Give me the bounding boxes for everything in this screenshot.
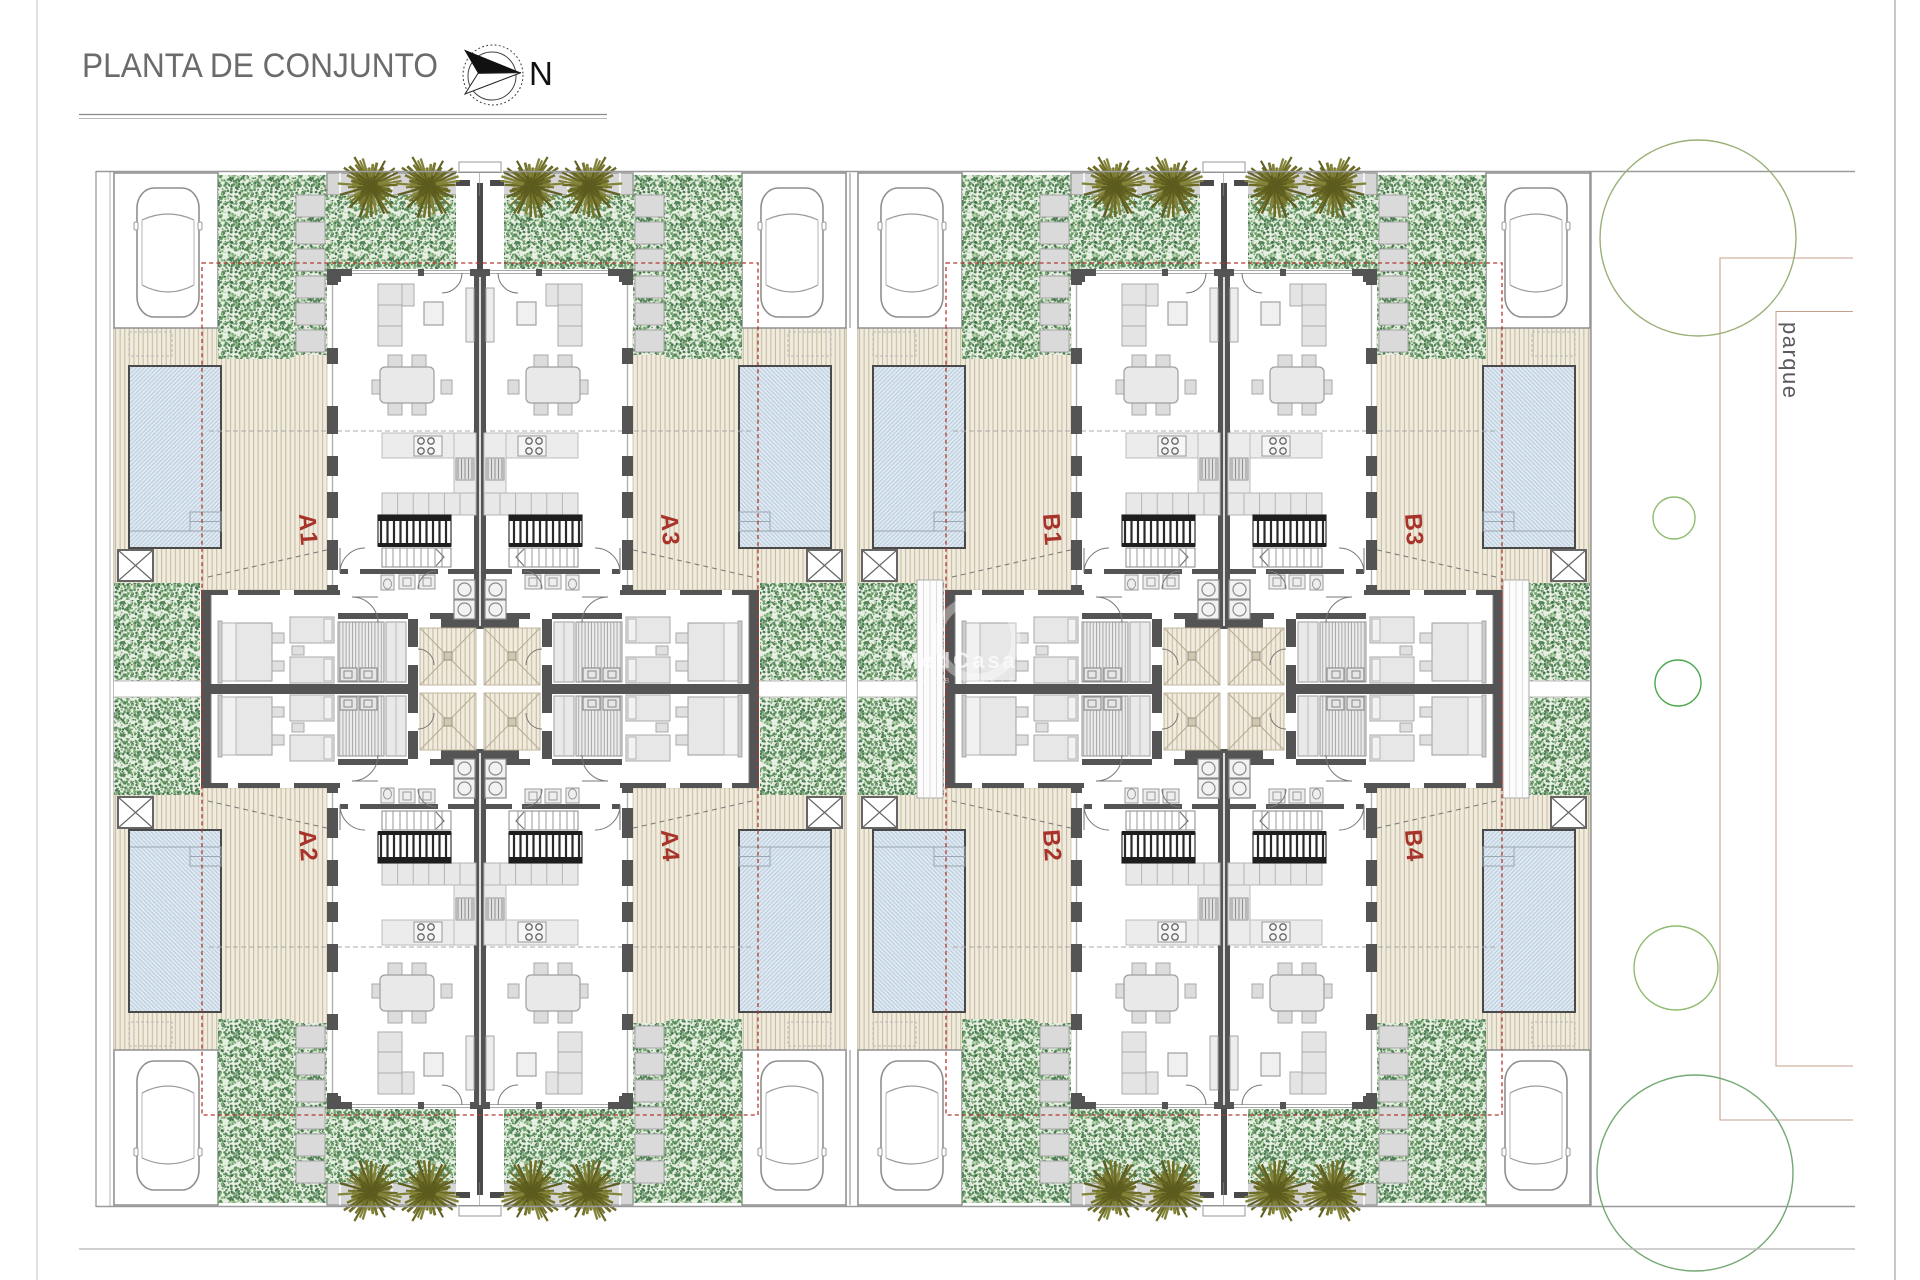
svg-text:N: N <box>529 55 553 92</box>
svg-text:parque: parque <box>1778 322 1803 400</box>
svg-text:MedCasa: MedCasa <box>900 648 1018 673</box>
svg-text:A4: A4 <box>655 829 684 863</box>
svg-text:B1: B1 <box>1037 513 1066 547</box>
svg-text:B4: B4 <box>1399 829 1428 863</box>
svg-text:A2: A2 <box>293 829 322 863</box>
svg-text:B3: B3 <box>1399 513 1428 547</box>
svg-text:A1: A1 <box>293 513 322 547</box>
svg-text:PLANTA DE CONJUNTO: PLANTA DE CONJUNTO <box>82 47 438 85</box>
svg-text:A3: A3 <box>655 513 684 547</box>
svg-text:I N M O B I L I A R I A: I N M O B I L I A R I A <box>902 678 1015 685</box>
svg-text:B2: B2 <box>1037 829 1066 863</box>
